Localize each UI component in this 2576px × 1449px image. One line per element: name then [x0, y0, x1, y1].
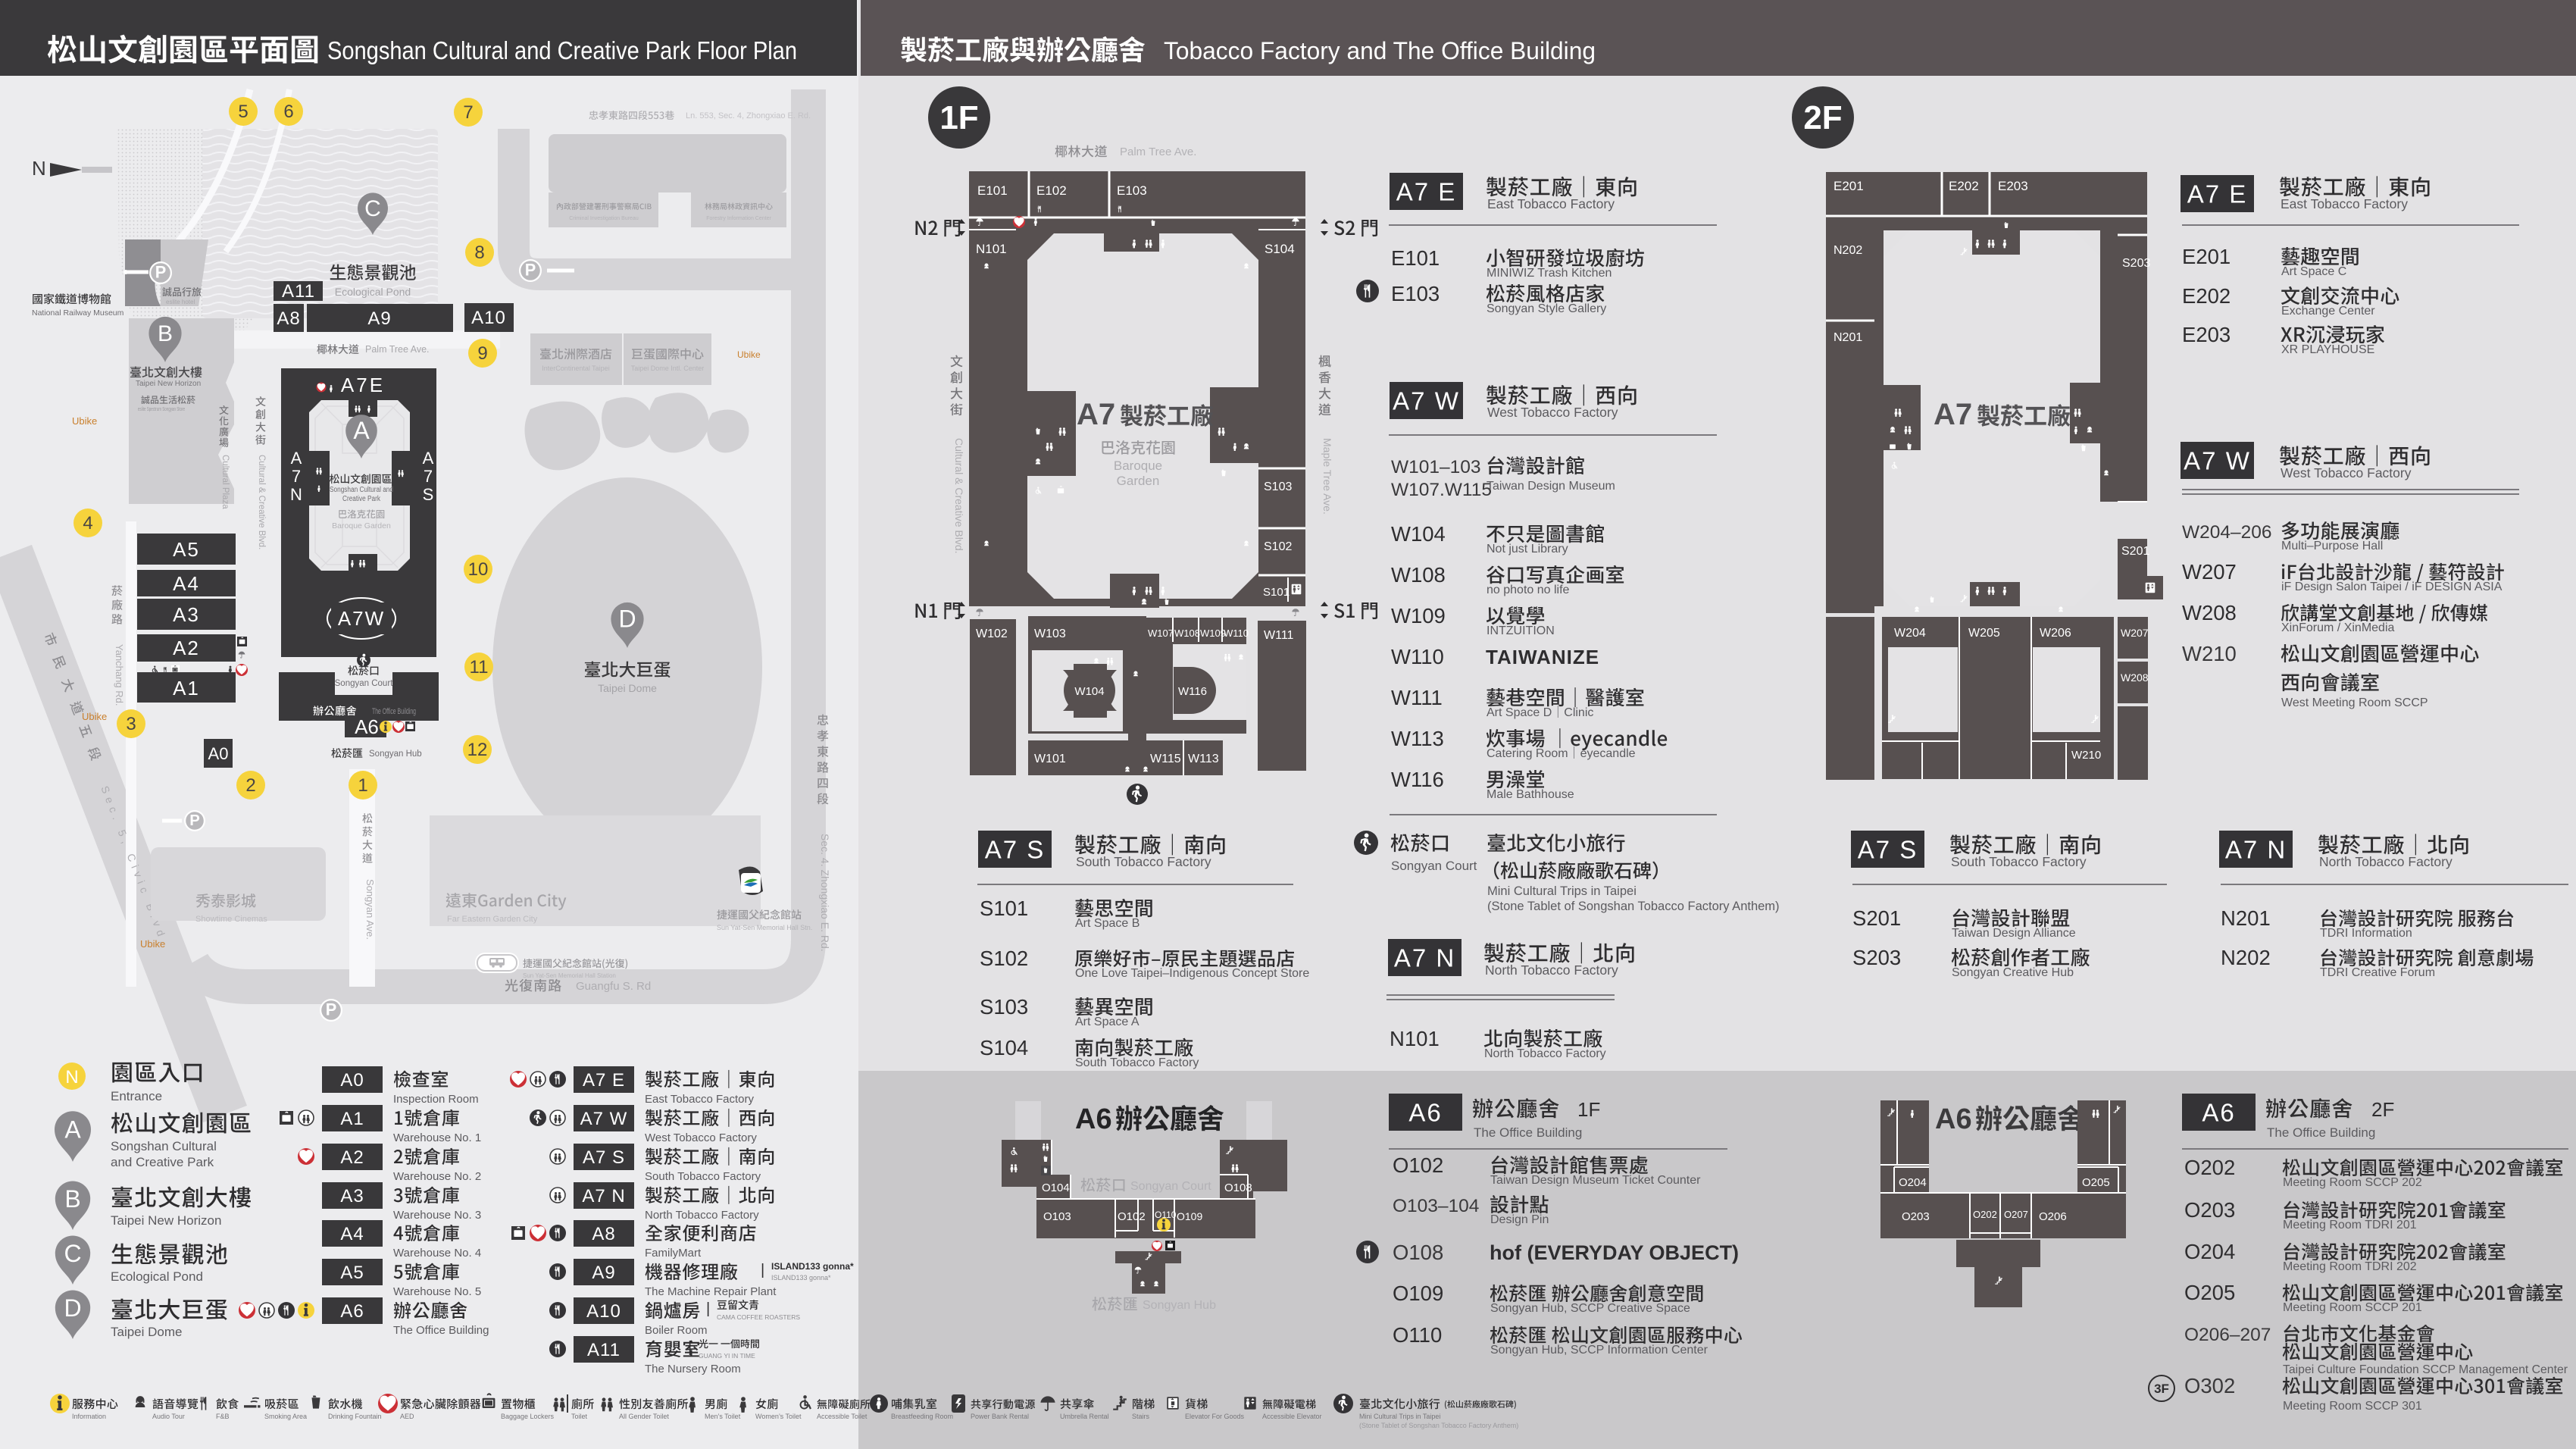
svg-text:A5: A5 — [340, 1263, 364, 1283]
svg-text:N201: N201 — [2221, 906, 2271, 930]
svg-text:Ecological Pond: Ecological Pond — [335, 286, 411, 298]
svg-text:Songyan Style Gallery: Songyan Style Gallery — [1487, 302, 1606, 315]
svg-text:Songyan Creative Hub: Songyan Creative Hub — [1952, 966, 2074, 979]
svg-text:|: | — [688, 1339, 692, 1356]
svg-text:O203: O203 — [1902, 1210, 1930, 1223]
svg-text:A7 N: A7 N — [1394, 944, 1455, 972]
svg-text:D: D — [64, 1294, 81, 1322]
svg-text:A9: A9 — [592, 1263, 615, 1283]
svg-text:2: 2 — [245, 775, 255, 796]
svg-text:O102: O102 — [1118, 1210, 1146, 1223]
svg-text:and Creative Park: and Creative Park — [111, 1155, 214, 1169]
svg-text:1F: 1F — [939, 99, 978, 136]
svg-text:S103: S103 — [980, 995, 1028, 1019]
svg-text:Design Pin: Design Pin — [1490, 1213, 1549, 1226]
svg-text:8: 8 — [474, 243, 484, 263]
svg-text:P: P — [326, 1000, 337, 1019]
svg-text:Forestry Information Center: Forestry Information Center — [706, 216, 771, 221]
svg-text:AED: AED — [239, 665, 245, 668]
svg-text:N202: N202 — [1834, 244, 1862, 257]
svg-text:A7: A7 — [1934, 398, 1972, 431]
svg-text:N201: N201 — [1834, 331, 1862, 344]
svg-text:Art Space D｜Clinic: Art Space D｜Clinic — [1487, 706, 1593, 719]
svg-text:O202: O202 — [1973, 1209, 1997, 1220]
svg-text:InterContinental Taipei: InterContinental Taipei — [542, 365, 609, 372]
svg-text:MINIWIZ Trash Kitchen: MINIWIZ Trash Kitchen — [1487, 267, 1612, 280]
svg-text:Ecological Pond: Ecological Pond — [111, 1269, 203, 1284]
svg-text:A0: A0 — [208, 744, 229, 763]
svg-text:Taiwan Design Museum Ticket Co: Taiwan Design Museum Ticket Counter — [1490, 1174, 1701, 1187]
svg-text:W208: W208 — [2182, 601, 2237, 624]
svg-text:W204–206: W204–206 — [2182, 522, 2272, 543]
svg-text:|: | — [706, 1300, 710, 1317]
svg-text:E203: E203 — [1998, 179, 2028, 193]
svg-text:Art Space B: Art Space B — [1075, 917, 1140, 930]
svg-text:iF Design Salon Taipei / iF DE: iF Design Salon Taipei / iF DESIGN ASIA — [2281, 581, 2503, 593]
svg-text:TDRI Creative Forum: TDRI Creative Forum — [2320, 966, 2435, 979]
svg-text:E103: E103 — [1117, 183, 1147, 198]
svg-text:Cultural & Creative Blvd.: Cultural & Creative Blvd. — [953, 438, 965, 554]
svg-text:W103: W103 — [1034, 627, 1066, 640]
svg-text:Cultural Plaza: Cultural Plaza — [220, 455, 230, 509]
svg-text:A7E: A7E — [341, 374, 385, 396]
svg-text:Far Eastern Garden City: Far Eastern Garden City — [447, 915, 538, 924]
svg-text:3: 3 — [126, 714, 136, 734]
svg-text:O104: O104 — [1042, 1181, 1070, 1194]
svg-text:A6: A6 — [2202, 1099, 2235, 1127]
svg-text:Creative Park: Creative Park — [342, 495, 381, 503]
svg-text:hof (EVERYDAY OBJECT): hof (EVERYDAY OBJECT) — [1490, 1241, 1739, 1264]
svg-text:Boiler Room: Boiler Room — [645, 1324, 708, 1337]
svg-text:S203: S203 — [2122, 257, 2150, 270]
svg-text:4: 4 — [83, 513, 92, 534]
svg-text:O103–104: O103–104 — [1393, 1196, 1479, 1216]
svg-text:W116: W116 — [1391, 768, 1444, 791]
svg-text:O302: O302 — [2184, 1374, 2235, 1397]
svg-text:W204: W204 — [1894, 627, 1926, 640]
svg-text:E102: E102 — [1036, 183, 1067, 198]
svg-text:W116: W116 — [1178, 685, 1207, 698]
svg-text:Sun Yat-Sen Memorial Hall Stn.: Sun Yat-Sen Memorial Hall Stn. — [717, 924, 812, 931]
svg-text:A7: A7 — [1077, 398, 1115, 431]
svg-text:E201: E201 — [1834, 179, 1864, 193]
svg-text:Maple Tree Ave.: Maple Tree Ave. — [1321, 438, 1333, 515]
svg-text:A2: A2 — [340, 1147, 364, 1168]
svg-text:C: C — [364, 196, 381, 221]
svg-text:ISLAND133 gonna*: ISLAND133 gonna* — [771, 1261, 854, 1272]
svg-text:W108: W108 — [1174, 627, 1200, 639]
svg-text:Songyan Ave.: Songyan Ave. — [364, 879, 376, 940]
svg-text:TDRI Information: TDRI Information — [2320, 927, 2412, 940]
svg-text:W205: W205 — [1968, 627, 2000, 640]
svg-text:Art Space A: Art Space A — [1075, 1016, 1140, 1028]
svg-text:A7 W: A7 W — [580, 1109, 628, 1129]
svg-text:A6: A6 — [355, 715, 379, 738]
svg-text:A6: A6 — [340, 1301, 364, 1322]
svg-text:West Tobacco Factory: West Tobacco Factory — [2281, 465, 2412, 480]
svg-text:Meeting Room TDRI 202: Meeting Room TDRI 202 — [2283, 1260, 2417, 1273]
svg-text:Exchange Center: Exchange Center — [2281, 305, 2375, 318]
svg-text:B: B — [158, 321, 173, 346]
svg-text:A: A — [64, 1116, 81, 1143]
svg-text:Tobacco Factory and The Office: Tobacco Factory and The Office Building — [1164, 37, 1596, 64]
svg-text:Meeting Room SCCP 201: Meeting Room SCCP 201 — [2283, 1301, 2422, 1314]
svg-text:West Tobacco Factory: West Tobacco Factory — [645, 1131, 757, 1144]
svg-text:A4: A4 — [340, 1224, 364, 1244]
svg-text:O204: O204 — [2184, 1240, 2235, 1263]
svg-text:F&B: F&B — [216, 1413, 230, 1420]
svg-text:Guangfu S. Rd: Guangfu S. Rd — [576, 980, 651, 993]
svg-text:S203: S203 — [1852, 946, 1901, 969]
svg-text:North Tobacco Factory: North Tobacco Factory — [1485, 962, 1618, 978]
svg-text:W108: W108 — [1391, 563, 1446, 587]
svg-text:Meeting Room TDRI 201: Meeting Room TDRI 201 — [2283, 1219, 2417, 1231]
svg-text:N: N — [290, 485, 302, 504]
svg-text:1: 1 — [358, 775, 367, 796]
svg-text:XR PLAYHOUSE: XR PLAYHOUSE — [2281, 343, 2374, 356]
svg-text:Ubike: Ubike — [737, 349, 761, 360]
svg-text:A7 E: A7 E — [583, 1070, 625, 1091]
svg-text:Warehouse No. 3: Warehouse No. 3 — [393, 1209, 481, 1222]
svg-text:Palm Tree Ave.: Palm Tree Ave. — [365, 344, 430, 355]
svg-text:A7 W: A7 W — [1393, 387, 1460, 415]
svg-text:AED: AED — [319, 383, 324, 387]
svg-text:E203: E203 — [2182, 323, 2231, 346]
svg-text:W109: W109 — [1391, 604, 1446, 627]
svg-text:Information: Information — [72, 1413, 106, 1420]
svg-text:Inspection Room: Inspection Room — [393, 1093, 479, 1106]
svg-text:S102: S102 — [980, 947, 1028, 970]
svg-text:N: N — [32, 157, 46, 180]
svg-text:A: A — [423, 449, 434, 468]
svg-text:O109: O109 — [1393, 1282, 1443, 1305]
svg-text:5: 5 — [238, 102, 248, 122]
svg-text:11: 11 — [470, 657, 489, 678]
svg-text:W102: W102 — [976, 627, 1008, 640]
svg-text:E101: E101 — [977, 183, 1008, 198]
svg-text:S201: S201 — [1852, 906, 1901, 930]
svg-text:Cultural & Creative Blvd.: Cultural & Creative Blvd. — [257, 455, 266, 549]
svg-text:South Tobacco Factory: South Tobacco Factory — [1951, 854, 2087, 869]
svg-text:A7 N: A7 N — [2225, 836, 2287, 864]
svg-text:AED: AED — [302, 1150, 311, 1155]
svg-text:A6: A6 — [1408, 1099, 1442, 1127]
svg-text:A7 N: A7 N — [582, 1186, 625, 1206]
svg-text:S: S — [423, 485, 434, 504]
svg-text:N: N — [65, 1067, 78, 1088]
svg-text:no photo no life: no photo no life — [1487, 584, 1570, 596]
svg-text:Not just Library: Not just Library — [1487, 543, 1568, 556]
svg-text:A8: A8 — [592, 1224, 615, 1244]
svg-text:Taipei Dome Intl. Center: Taipei Dome Intl. Center — [631, 365, 705, 372]
svg-text:Warehouse No. 5: Warehouse No. 5 — [393, 1285, 481, 1298]
svg-text:Male Bathhouse: Male Bathhouse — [1487, 788, 1574, 801]
svg-text:East Tobacco Factory: East Tobacco Factory — [645, 1093, 754, 1106]
svg-text:Accessible Toilet: Accessible Toilet — [817, 1413, 868, 1420]
svg-text:W210: W210 — [2071, 749, 2101, 762]
svg-text:W206: W206 — [2040, 627, 2071, 640]
svg-text:INTZUITION: INTZUITION — [1487, 624, 1555, 637]
svg-text:AED: AED — [383, 1397, 392, 1401]
svg-text:E202: E202 — [1949, 179, 1979, 193]
svg-text:AED: AED — [534, 1227, 542, 1231]
svg-text:Ubike: Ubike — [72, 415, 97, 427]
svg-text:Mini Cultural Trips in Taipei: Mini Cultural Trips in Taipei — [1359, 1413, 1440, 1420]
svg-text:6: 6 — [283, 102, 293, 122]
svg-text:O206: O206 — [2039, 1210, 2067, 1223]
svg-text:Men’s Toilet: Men’s Toilet — [705, 1413, 741, 1420]
svg-text:D: D — [618, 606, 636, 633]
svg-text:W115: W115 — [1150, 753, 1181, 765]
svg-text:S104: S104 — [1265, 242, 1295, 256]
svg-text:E202: E202 — [2182, 284, 2231, 308]
svg-text:Smoking Area: Smoking Area — [264, 1413, 307, 1420]
svg-text:Women’s Toilet: Women’s Toilet — [755, 1413, 802, 1420]
svg-text:N202: N202 — [2221, 946, 2271, 969]
svg-text:Breastfeeding Room: Breastfeeding Room — [891, 1413, 953, 1420]
svg-text:W208: W208 — [2121, 671, 2149, 684]
svg-text:A8: A8 — [277, 308, 300, 329]
svg-text:W101: W101 — [1034, 753, 1066, 765]
svg-text:Accessible Elevator: Accessible Elevator — [1262, 1413, 1322, 1420]
svg-text:A7 E: A7 E — [2187, 180, 2248, 208]
svg-text:O103: O103 — [1043, 1210, 1071, 1223]
svg-text:Taiwan Design Museum: Taiwan Design Museum — [1487, 480, 1615, 493]
svg-text:7: 7 — [292, 467, 301, 486]
svg-text:East Tobacco Factory: East Tobacco Factory — [2281, 196, 2408, 211]
svg-text:10: 10 — [468, 559, 489, 580]
svg-text:Taipei Culture Foundation SCCP: Taipei Culture Foundation SCCP Managemen… — [2283, 1363, 2568, 1376]
svg-text:eslite hotel: eslite hotel — [166, 299, 195, 305]
svg-text:|: | — [761, 1262, 764, 1278]
svg-text:(Stone Tablet of Songshan Toba: (Stone Tablet of Songshan Tobacco Factor… — [1359, 1422, 1518, 1429]
svg-text:The Office Building: The Office Building — [2267, 1125, 2375, 1140]
svg-text:S101: S101 — [980, 897, 1028, 920]
svg-text:North Tobacco Factory: North Tobacco Factory — [645, 1209, 759, 1222]
svg-text:Baggage Lockers: Baggage Lockers — [501, 1413, 555, 1420]
svg-text:Sec. 4. Zhongxiao E. Rd.: Sec. 4. Zhongxiao E. Rd. — [819, 834, 831, 952]
svg-text:A7 S: A7 S — [985, 836, 1046, 864]
svg-text:S103: S103 — [1264, 480, 1292, 493]
svg-text:National Railway Museum: National Railway Museum — [32, 308, 124, 318]
svg-text:Toilet: Toilet — [571, 1413, 588, 1420]
svg-text:Warehouse No. 4: Warehouse No. 4 — [393, 1247, 481, 1260]
svg-text:Criminal Investigation Bureau: Criminal Investigation Bureau — [569, 216, 639, 221]
svg-text:A3: A3 — [340, 1186, 364, 1206]
svg-text:Songshan Cultural: Songshan Cultural — [111, 1139, 217, 1153]
svg-text:W111: W111 — [1264, 629, 1294, 642]
svg-text:eslite Spectrum Songyan Store: eslite Spectrum Songyan Store — [138, 407, 185, 412]
svg-text:W107.W115: W107.W115 — [1391, 480, 1492, 500]
svg-text:O202: O202 — [2184, 1156, 2235, 1179]
svg-text:W207: W207 — [2182, 560, 2237, 584]
svg-text:A6: A6 — [1935, 1103, 1972, 1135]
svg-text:W104: W104 — [1391, 522, 1446, 546]
svg-text:2F: 2F — [2371, 1098, 2394, 1121]
svg-text:O108: O108 — [1393, 1241, 1443, 1264]
svg-text:Songyan Hub, SCCP Creative Spa: Songyan Hub, SCCP Creative Space — [1490, 1302, 1690, 1315]
svg-text:A3: A3 — [173, 603, 200, 626]
svg-text:7: 7 — [424, 467, 433, 486]
svg-text:O102: O102 — [1393, 1153, 1443, 1177]
svg-text:B: B — [64, 1185, 80, 1213]
svg-text:Songyan Court: Songyan Court — [335, 679, 394, 688]
svg-text:Catering Room｜eyecandle: Catering Room｜eyecandle — [1487, 746, 1636, 760]
svg-text:Audio Tour: Audio Tour — [152, 1413, 185, 1420]
svg-text:Taipei Dome: Taipei Dome — [111, 1325, 183, 1339]
svg-text:A11: A11 — [587, 1340, 621, 1360]
svg-text:A7 W: A7 W — [2184, 447, 2251, 475]
svg-text:Songyan Court: Songyan Court — [1130, 1180, 1211, 1193]
svg-text:AED: AED — [243, 1304, 252, 1309]
svg-text:Drinking Fountain: Drinking Fountain — [328, 1413, 382, 1420]
svg-text:South Tobacco Factory: South Tobacco Factory — [1076, 854, 1211, 869]
svg-text:Ubike: Ubike — [82, 711, 107, 722]
svg-text:O110: O110 — [1393, 1323, 1442, 1347]
svg-text:P: P — [189, 812, 200, 829]
svg-text:TAIWANIZE: TAIWANIZE — [1486, 646, 1599, 668]
svg-text:The Nursery Room: The Nursery Room — [645, 1363, 741, 1375]
svg-text:P: P — [525, 261, 536, 280]
svg-text:S104: S104 — [980, 1036, 1028, 1059]
svg-text:AED: AED — [395, 722, 402, 725]
svg-text:C: C — [64, 1240, 81, 1267]
svg-text:1F: 1F — [1577, 1098, 1600, 1121]
svg-text:Yanchang Rd.: Yanchang Rd. — [114, 644, 125, 706]
svg-text:O207: O207 — [2004, 1209, 2028, 1220]
svg-text:Songyan Hub: Songyan Hub — [1143, 1299, 1216, 1312]
svg-text:W207: W207 — [2121, 627, 2149, 639]
svg-text:O204: O204 — [1899, 1176, 1927, 1189]
svg-text:W104: W104 — [1074, 685, 1104, 698]
svg-text:A5: A5 — [173, 538, 200, 561]
svg-text:A11: A11 — [282, 281, 315, 302]
svg-text:Baroque Garden: Baroque Garden — [332, 521, 391, 530]
svg-text:S201: S201 — [2121, 545, 2149, 558]
svg-text:9: 9 — [477, 343, 487, 364]
svg-text:Songshan Cultural and: Songshan Cultural and — [330, 486, 393, 494]
svg-text:W113: W113 — [1391, 727, 1444, 750]
svg-text:FamilyMart: FamilyMart — [645, 1247, 702, 1260]
svg-text:AED: AED — [514, 1073, 523, 1078]
svg-text:A10: A10 — [586, 1301, 621, 1322]
svg-text:A7 E: A7 E — [1396, 178, 1457, 206]
svg-text:Songshan Cultural and Creative: Songshan Cultural and Creative Park Floo… — [327, 36, 797, 64]
svg-text:AED: AED — [400, 1413, 414, 1420]
svg-text:(Stone Tablet of Songshan Toba: (Stone Tablet of Songshan Tobacco Factor… — [1487, 900, 1780, 913]
svg-text:O203: O203 — [2184, 1198, 2235, 1222]
svg-text:A7W: A7W — [338, 607, 385, 630]
svg-text:AED: AED — [1155, 1242, 1160, 1245]
svg-text:7: 7 — [463, 102, 473, 123]
svg-text:West Meeting Room SCCP: West Meeting Room SCCP — [2281, 696, 2428, 709]
svg-text:Taipei Dome: Taipei Dome — [598, 682, 657, 694]
svg-text:W110: W110 — [1391, 645, 1444, 668]
svg-text:Taiwan Design Alliance: Taiwan Design Alliance — [1952, 927, 2076, 940]
svg-text:Sun Yat-Sen Memorial Hall Stat: Sun Yat-Sen Memorial Hall Station — [523, 972, 616, 979]
svg-text:One Love Taipei–Indigenous Con: One Love Taipei–Indigenous Concept Store — [1075, 967, 1309, 980]
svg-text:S102: S102 — [1264, 540, 1292, 553]
svg-text:E201: E201 — [2182, 245, 2231, 268]
svg-text:A1: A1 — [340, 1109, 364, 1129]
svg-text:2F: 2F — [1803, 99, 1842, 136]
svg-text:W210: W210 — [2182, 642, 2237, 665]
svg-text:All Gender Toilet: All Gender Toilet — [619, 1413, 669, 1420]
svg-text:O205: O205 — [2082, 1176, 2110, 1189]
svg-text:W111: W111 — [1391, 686, 1443, 709]
svg-text:E101: E101 — [1391, 246, 1440, 270]
svg-text:Umbrella Rental: Umbrella Rental — [1060, 1413, 1109, 1420]
svg-text:W101–103: W101–103 — [1391, 457, 1481, 477]
svg-text:The Office Building: The Office Building — [1474, 1125, 1582, 1140]
svg-text:N101: N101 — [1390, 1027, 1440, 1050]
svg-text:Songyan Court: Songyan Court — [1391, 859, 1477, 873]
svg-text:N101: N101 — [976, 242, 1007, 256]
svg-text:W109: W109 — [1200, 627, 1226, 639]
svg-text:E103: E103 — [1391, 282, 1440, 305]
svg-text:Meeting Room SCCP 202: Meeting Room SCCP 202 — [2283, 1176, 2422, 1189]
svg-text:Meeting Room SCCP 301: Meeting Room SCCP 301 — [2283, 1400, 2422, 1413]
svg-text:Entrance: Entrance — [111, 1089, 162, 1103]
svg-text:AED: AED — [1016, 218, 1022, 221]
svg-text:The Machine Repair Plant: The Machine Repair Plant — [645, 1285, 777, 1298]
svg-text:S101: S101 — [1263, 586, 1290, 599]
svg-text:A1: A1 — [173, 677, 200, 699]
svg-text:Power Bank Rental: Power Bank Rental — [971, 1413, 1029, 1420]
svg-text:Palm Tree Ave.: Palm Tree Ave. — [1120, 146, 1196, 158]
svg-text:South Tobacco Factory: South Tobacco Factory — [645, 1170, 761, 1183]
svg-text:A2: A2 — [173, 637, 200, 659]
svg-text:Baroque: Baroque — [1114, 458, 1162, 473]
svg-text:Showtime Cinemas: Showtime Cinemas — [195, 915, 267, 924]
svg-text:GUANG YI IN TIME: GUANG YI IN TIME — [699, 1352, 755, 1360]
svg-text:The Office Building: The Office Building — [393, 1324, 489, 1337]
svg-text:Stairs: Stairs — [1132, 1413, 1150, 1420]
svg-text:A7 S: A7 S — [1858, 836, 1918, 864]
svg-text:W107: W107 — [1148, 627, 1174, 639]
svg-text:A9: A9 — [367, 308, 391, 329]
svg-text:O206–207: O206–207 — [2184, 1325, 2271, 1345]
svg-text:A: A — [353, 417, 370, 444]
svg-text:A7 S: A7 S — [583, 1147, 625, 1168]
svg-text:Multi–Purpose Hall: Multi–Purpose Hall — [2281, 540, 2383, 552]
svg-text:O109: O109 — [1177, 1210, 1202, 1222]
svg-text:A4: A4 — [173, 572, 200, 595]
svg-text:West Tobacco Factory: West Tobacco Factory — [1487, 405, 1618, 420]
svg-text:East Tobacco Factory: East Tobacco Factory — [1487, 196, 1615, 211]
svg-text:Taipei New Horizon: Taipei New Horizon — [111, 1213, 221, 1228]
svg-text:ISLAND133 gonna*: ISLAND133 gonna* — [771, 1274, 831, 1282]
svg-text:A: A — [291, 449, 302, 468]
svg-text:A0: A0 — [340, 1070, 364, 1091]
svg-text:3F: 3F — [2154, 1382, 2169, 1396]
svg-text:Songyan Hub, SCCP Information: Songyan Hub, SCCP Information Center — [1490, 1344, 1708, 1357]
svg-text:P: P — [155, 263, 167, 282]
svg-text:A10: A10 — [471, 308, 506, 328]
svg-text:Art Space C: Art Space C — [2281, 265, 2346, 278]
svg-text:A6: A6 — [1075, 1103, 1112, 1135]
svg-text:North Tobacco Factory: North Tobacco Factory — [2319, 854, 2453, 869]
svg-text:Warehouse No. 1: Warehouse No. 1 — [393, 1131, 481, 1144]
svg-text:CAMA COFFEE ROASTERS: CAMA COFFEE ROASTERS — [717, 1313, 800, 1321]
svg-text:Taipei New Horizon: Taipei New Horizon — [136, 380, 201, 388]
svg-text:North Tobacco Factory: North Tobacco Factory — [1484, 1047, 1606, 1060]
svg-text:12: 12 — [467, 740, 488, 760]
svg-text:W113: W113 — [1188, 753, 1219, 765]
svg-text:Ln. 553, Sec. 4, Zhongxiao E.: Ln. 553, Sec. 4, Zhongxiao E. Rd. — [686, 111, 811, 120]
svg-text:Warehouse No. 2: Warehouse No. 2 — [393, 1170, 481, 1183]
svg-text:Songyan Hub: Songyan Hub — [369, 750, 422, 759]
